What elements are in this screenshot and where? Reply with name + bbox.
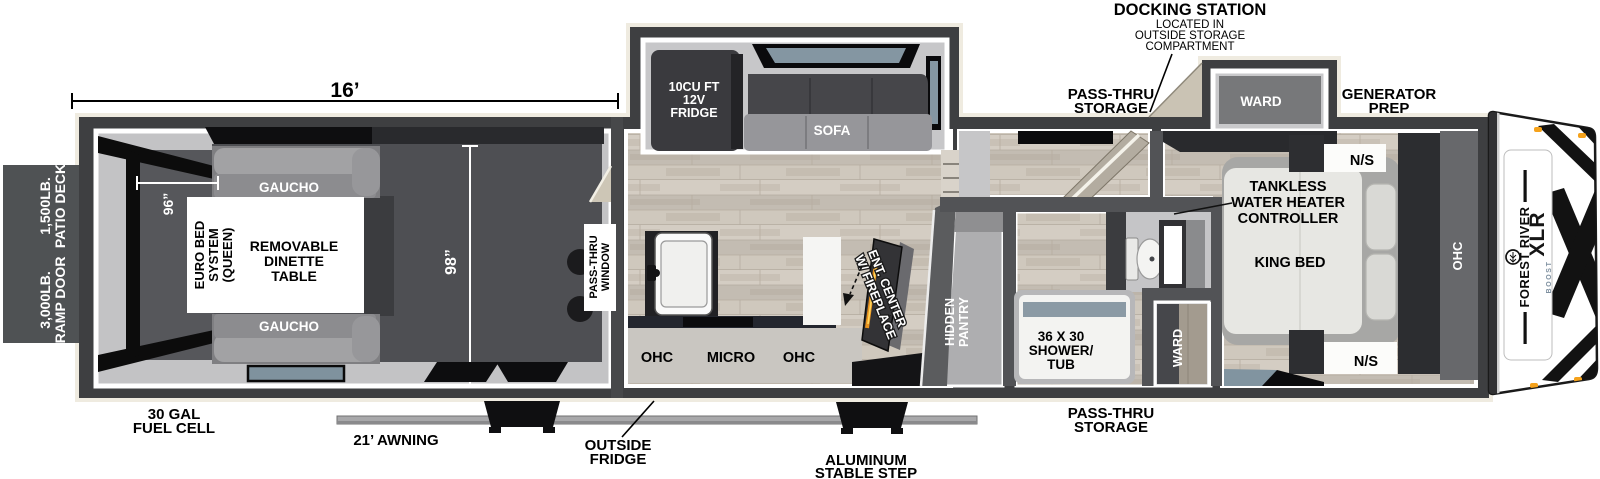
- svg-text:WARD: WARD: [1171, 329, 1185, 367]
- svg-text:PASS-THRU: PASS-THRU: [588, 235, 600, 298]
- svg-text:TANKLESS: TANKLESS: [1249, 179, 1326, 195]
- svg-text:12V: 12V: [683, 93, 706, 107]
- svg-text:SOFA: SOFA: [814, 123, 851, 138]
- svg-text:OHC: OHC: [641, 350, 674, 366]
- svg-text:SHOWER/: SHOWER/: [1029, 343, 1094, 358]
- svg-text:GAUCHO: GAUCHO: [259, 180, 319, 195]
- svg-text:16’: 16’: [330, 79, 359, 102]
- svg-text:STORAGE: STORAGE: [1074, 100, 1148, 117]
- svg-text:STABLE STEP: STABLE STEP: [815, 465, 917, 479]
- svg-text:21’ AWNING: 21’ AWNING: [353, 432, 438, 449]
- svg-text:FUEL CELL: FUEL CELL: [133, 420, 215, 437]
- svg-text:WATER HEATER: WATER HEATER: [1231, 195, 1345, 211]
- svg-text:HIDDEN: HIDDEN: [943, 298, 957, 346]
- svg-text:DOCKING STATION: DOCKING STATION: [1114, 1, 1266, 19]
- svg-text:36 X 30: 36 X 30: [1038, 329, 1085, 344]
- svg-text:PATIO DECK: PATIO DECK: [52, 164, 68, 248]
- svg-text:MICRO: MICRO: [707, 350, 755, 366]
- svg-text:CONTROLLER: CONTROLLER: [1238, 211, 1339, 227]
- svg-text:98”: 98”: [443, 249, 460, 275]
- svg-text:KING BED: KING BED: [1255, 255, 1326, 271]
- svg-text:PREP: PREP: [1369, 100, 1410, 117]
- svg-text:3,000LB.: 3,000LB.: [37, 271, 53, 329]
- svg-text:GAUCHO: GAUCHO: [259, 319, 319, 334]
- svg-text:WINDOW: WINDOW: [600, 242, 612, 291]
- svg-text:OHC: OHC: [783, 350, 816, 366]
- svg-text:1,500LB.: 1,500LB.: [37, 177, 53, 235]
- svg-text:96”: 96”: [160, 193, 176, 216]
- svg-text:FRIDGE: FRIDGE: [670, 106, 717, 120]
- svg-text:SYSTEM: SYSTEM: [206, 228, 221, 281]
- svg-text:(QUEEN): (QUEEN): [220, 228, 235, 283]
- svg-text:TUB: TUB: [1047, 357, 1075, 372]
- svg-text:REMOVABLE: REMOVABLE: [250, 238, 338, 254]
- svg-text:EURO BED: EURO BED: [192, 221, 207, 290]
- svg-text:COMPARTMENT: COMPARTMENT: [1145, 41, 1234, 53]
- svg-text:FRIDGE: FRIDGE: [590, 451, 647, 468]
- svg-text:STORAGE: STORAGE: [1074, 419, 1148, 436]
- svg-text:WARD: WARD: [1240, 94, 1281, 109]
- svg-text:PANTRY: PANTRY: [957, 296, 971, 347]
- svg-text:BOOST: BOOST: [1546, 261, 1553, 294]
- svg-text:XLR: XLR: [1526, 212, 1549, 257]
- svg-text:10CU FT: 10CU FT: [669, 80, 720, 94]
- svg-text:TABLE: TABLE: [271, 268, 317, 284]
- svg-text:OHC: OHC: [1450, 241, 1465, 271]
- svg-text:RAMP DOOR: RAMP DOOR: [52, 257, 68, 344]
- svg-text:N/S: N/S: [1350, 153, 1375, 169]
- svg-text:DINETTE: DINETTE: [264, 253, 324, 269]
- svg-text:N/S: N/S: [1354, 354, 1379, 370]
